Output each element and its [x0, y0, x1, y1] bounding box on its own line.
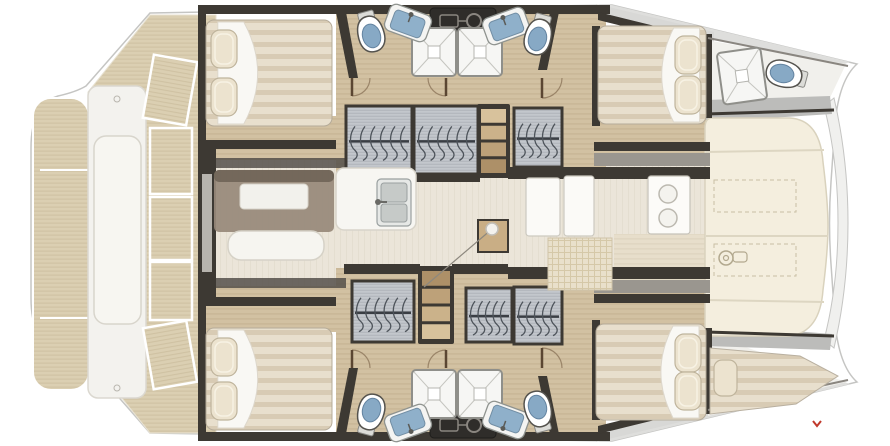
mast-ball	[486, 223, 498, 235]
salon-bench	[228, 231, 324, 260]
salon-wall-bottom-left	[216, 278, 346, 288]
wardrobe-top-a	[346, 106, 412, 174]
floorplan-layers	[31, 2, 857, 443]
wall-bed-foot-bottom-left	[204, 297, 336, 306]
stove-burner-2	[659, 209, 677, 227]
wall-wardrobe-top-bottom-hull-b	[452, 264, 508, 274]
aft-teak-panel-2	[150, 197, 192, 260]
wall-bed-foot-top-left	[204, 140, 336, 149]
galley-sink-basin-1	[381, 183, 407, 202]
wardrobe-bottom-c	[514, 287, 562, 344]
wardrobe-bottom-a	[352, 281, 414, 342]
wall-wardrobe-top-bottom-hull-a	[344, 264, 420, 274]
galley-grid-mat	[548, 238, 612, 290]
aft-platform-outer	[33, 98, 89, 390]
wall-headboard-bottom-left	[198, 286, 206, 434]
table-tray	[240, 184, 308, 209]
aft-teak-panel-3	[150, 262, 192, 320]
bed-fwd-port	[598, 26, 706, 124]
salon-wall-top-left	[216, 158, 346, 168]
aft-teak-panel-1	[150, 128, 192, 194]
stove-burner-1	[659, 185, 677, 203]
bed-aft-starboard	[206, 328, 332, 430]
wardrobe-top-b	[414, 106, 478, 174]
crew-berth-pillow	[714, 360, 737, 396]
salon-aft-sliding-door	[202, 174, 212, 272]
aft-teak-panel-lower	[143, 321, 197, 390]
cabin-floor-bottom-left	[204, 286, 336, 332]
aft-screw-bottom	[114, 385, 120, 391]
walk-gray-top-right	[594, 153, 710, 166]
wall-headboard-top-left	[198, 12, 206, 160]
salon-table-edge	[214, 170, 334, 182]
wardrobe-top-c	[514, 108, 562, 167]
bed-fwd-starboard	[596, 324, 706, 420]
stairs-bottom-hull	[418, 266, 454, 344]
galley-sink-basin-2	[381, 204, 407, 222]
stairs-top-hull	[477, 104, 510, 178]
floorplan-canvas	[0, 0, 890, 446]
galley-module-1	[526, 178, 560, 236]
brand-mark	[813, 421, 821, 426]
aft-screw-top	[114, 96, 120, 102]
bow-shower	[717, 47, 768, 105]
bed-aft-port	[206, 20, 332, 126]
aft-teak-panel-upper	[143, 55, 197, 126]
wall-bed-foot-bottom-right	[594, 294, 710, 303]
wardrobe-bottom-b	[466, 288, 512, 342]
galley-module-2	[564, 176, 594, 236]
aft-bench-cushion	[94, 136, 141, 324]
wall-bed-foot-top-right	[594, 142, 710, 151]
catamaran-floorplan-image	[0, 0, 890, 446]
